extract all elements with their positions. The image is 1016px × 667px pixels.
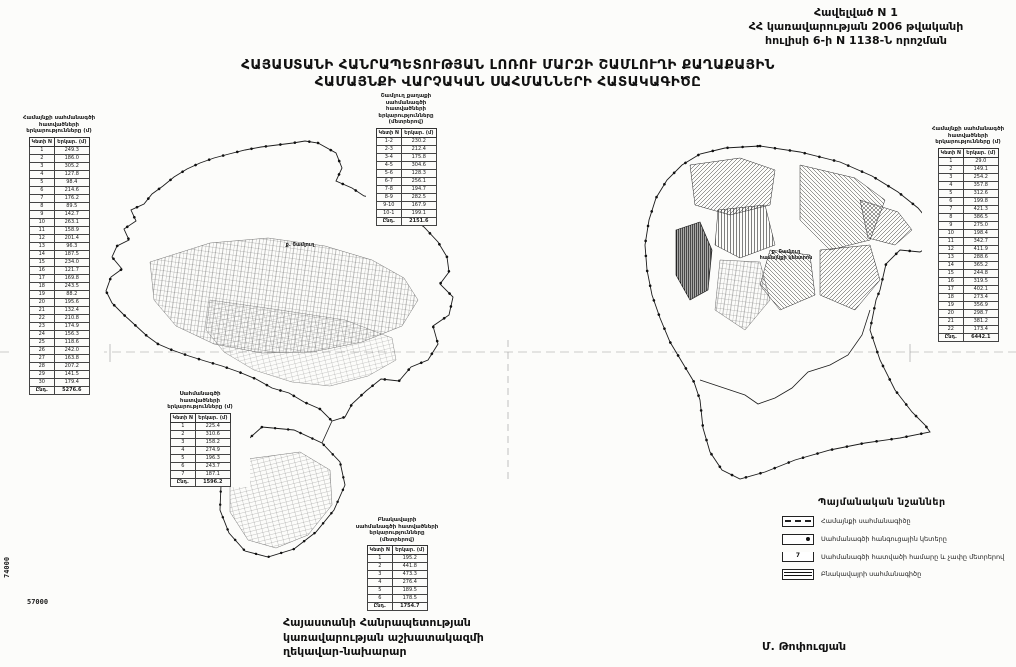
table-cell: 23 <box>29 322 55 330</box>
table-row: 889.5 <box>29 202 89 210</box>
table-row: 2186.0 <box>29 154 89 162</box>
table-cell: 230.2 <box>402 137 436 145</box>
table-title-line: Համայնքի սահմանագծի <box>922 126 1014 133</box>
table-row: 30179.4 <box>29 378 89 386</box>
table-cell: 1 <box>367 555 393 563</box>
table-row: 7-8194.7 <box>376 185 436 193</box>
table-cell: 18 <box>938 293 964 301</box>
table-cell: 276.4 <box>393 579 427 587</box>
column-header: Երկար. (մ) <box>964 148 998 157</box>
table-cell: 199.1 <box>402 209 436 217</box>
table-cell: 2 <box>29 154 55 162</box>
table-row: 1225.4 <box>170 422 230 430</box>
right-map-parcels <box>715 260 770 330</box>
column-header: Կետի N <box>170 413 196 422</box>
table-cell: 2 <box>170 430 196 438</box>
table-cell: 16 <box>938 277 964 285</box>
table-cell: 4 <box>938 181 964 189</box>
table-cell: 132.4 <box>55 306 89 314</box>
legend-item-label: Սահմանագծի հանգուցային կետերը <box>821 536 947 543</box>
table-row: 4-5304.6 <box>376 161 436 169</box>
table-cell: 29.0 <box>964 157 998 165</box>
table-cell: 24 <box>29 330 55 338</box>
table-cell: 7 <box>938 205 964 213</box>
table-row: 13288.6 <box>938 253 998 261</box>
table-cell: 214.6 <box>55 186 89 194</box>
table-cell: 173.4 <box>964 325 998 333</box>
table-cell: 2 <box>367 563 393 571</box>
table-cell: 169.8 <box>55 274 89 282</box>
table-cell: 3 <box>170 438 196 446</box>
table-cell: 225.4 <box>196 422 230 430</box>
column-header: Կետի N <box>367 546 393 555</box>
table-cell: 1 <box>170 422 196 430</box>
table-row: 5312.6 <box>938 189 998 197</box>
table-cell: 1596.2 <box>196 478 230 486</box>
table-header-row: Կետի NԵրկար. (մ) <box>29 137 89 146</box>
table-row: 15234.0 <box>29 258 89 266</box>
table-cell: 312.6 <box>964 189 998 197</box>
table-row: 4274.9 <box>170 446 230 454</box>
scanned-map-page: Հավելված N 1 ՀՀ կառավարության 2006 թվակա… <box>0 0 1016 667</box>
table-row: 10263.1 <box>29 218 89 226</box>
table-cell: 8 <box>29 202 55 210</box>
table-cell: 158.9 <box>55 226 89 234</box>
table-row: 6243.7 <box>170 462 230 470</box>
boundary-table-left: Համայնքի սահմանագծիհատվածներիերկարությու… <box>14 115 104 395</box>
table-cell: 8-9 <box>376 193 402 201</box>
signature-name: Մ. Թոփուզյան <box>762 640 846 653</box>
table-row: 2-3212.4 <box>376 145 436 153</box>
table-cell: 201.4 <box>55 234 89 242</box>
table-title: Համայնքի սահմանագծիհատվածներիերկարությու… <box>922 126 1014 146</box>
table-cell: 2 <box>938 165 964 173</box>
column-header: Կետի N <box>29 137 55 146</box>
table-row: 20195.6 <box>29 298 89 306</box>
table-cell: 3 <box>367 571 393 579</box>
table-row: 2441.8 <box>367 563 427 571</box>
table-row: 17402.1 <box>938 285 998 293</box>
column-header: Կետի N <box>938 148 964 157</box>
table-row: 26242.0 <box>29 346 89 354</box>
table-cell: 98.4 <box>55 178 89 186</box>
table-cell: 28 <box>29 362 55 370</box>
boundary-table-upper-mid: Շամլուղ քաղաքիսահմանագծի հատվածներիերկար… <box>366 93 446 226</box>
table-title: Շամլուղ քաղաքիսահմանագծի հատվածներիերկար… <box>366 93 446 126</box>
right-map-outer-boundary <box>645 146 936 479</box>
data-table: Կետի NԵրկար. (մ)129.02149.13254.24357.85… <box>938 148 999 342</box>
table-row: 1249.3 <box>29 146 89 154</box>
table-row: 4276.4 <box>367 579 427 587</box>
page-title-line-1: ՀԱՅԱՍՏԱՆԻ ՀԱՆՐԱՊԵՏՈՒԹՅԱՆ ԼՈՌՈՒ ՄԱՐԶԻ ՇԱՄ… <box>0 57 1016 73</box>
table-cell: 402.1 <box>964 285 998 293</box>
table-row: 7421.3 <box>938 205 998 213</box>
signature-block: Հայաստանի Հանրապետության կառավարության ա… <box>283 616 484 660</box>
table-row: 14365.2 <box>938 261 998 269</box>
right-map-label-line: համայնքի կենտրոն <box>748 256 824 262</box>
table-row: 19356.9 <box>938 301 998 309</box>
table-cell: 288.6 <box>964 253 998 261</box>
table-cell: 254.2 <box>964 173 998 181</box>
table-cell: 4 <box>29 170 55 178</box>
table-header-row: Կետի NԵրկար. (մ) <box>170 413 230 422</box>
table-cell: 8 <box>938 213 964 221</box>
table-cell: 6 <box>938 197 964 205</box>
left-map-connector-line <box>322 421 332 443</box>
table-header-row: Կետի NԵրկար. (մ) <box>938 148 998 157</box>
table-cell: 118.6 <box>55 338 89 346</box>
column-header: Երկար. (մ) <box>402 128 436 137</box>
annex-header: Հավելված N 1 ՀՀ կառավարության 2006 թվակա… <box>706 6 1006 48</box>
column-header: Կետի N <box>376 128 402 137</box>
table-cell: 12 <box>938 245 964 253</box>
table-cell: 187.1 <box>196 470 230 478</box>
table-row: 4357.8 <box>938 181 998 189</box>
column-header: Երկար. (մ) <box>55 137 89 146</box>
table-row: 6178.5 <box>367 595 427 603</box>
table-cell: 121.7 <box>55 266 89 274</box>
table-row: 9-10167.9 <box>376 201 436 209</box>
table-row: 1-2230.2 <box>376 137 436 145</box>
table-row: 23174.9 <box>29 322 89 330</box>
table-cell: 158.2 <box>196 438 230 446</box>
table-cell: 4 <box>170 446 196 454</box>
table-cell: 3 <box>938 173 964 181</box>
table-cell: 187.5 <box>55 250 89 258</box>
table-row: 14187.5 <box>29 250 89 258</box>
right-map-label: ք. Շամլուղ համայնքի կենտրոն <box>748 250 824 261</box>
table-header-row: Կետի NԵրկար. (մ) <box>367 546 427 555</box>
table-cell: 15 <box>29 258 55 266</box>
table-cell: 275.0 <box>964 221 998 229</box>
table-cell: 89.5 <box>55 202 89 210</box>
signature-line: ղեկավար-նախարար <box>283 645 484 660</box>
table-cell: 176.2 <box>55 194 89 202</box>
data-table: Կետի NԵրկար. (մ)1249.32186.03305.24127.8… <box>29 137 90 395</box>
legend-title: Պայմանական նշաններ <box>818 497 1016 508</box>
table-cell: 5276.6 <box>55 386 89 394</box>
table-cell: 21 <box>938 317 964 325</box>
table-cell: 282.5 <box>402 193 436 201</box>
legend-item: Համայնքի սահմանագիծը <box>782 516 1016 527</box>
table-title: Սահմանագծիհատվածներիերկարությունները (մ) <box>150 391 250 411</box>
table-cell: 234.0 <box>55 258 89 266</box>
table-cell: 127.8 <box>55 170 89 178</box>
table-title: Համայնքի սահմանագծիհատվածներիերկարությու… <box>14 115 104 135</box>
table-cell: 298.7 <box>964 309 998 317</box>
right-map-hatch-dense <box>676 222 712 300</box>
table-cell: 6 <box>29 186 55 194</box>
table-cell: 242.0 <box>55 346 89 354</box>
data-table: Կետի NԵրկար. (մ)1195.22441.83473.34276.4… <box>367 545 428 611</box>
table-cell: 3 <box>29 162 55 170</box>
table-header-row: Կետի NԵրկար. (մ) <box>376 128 436 137</box>
table-row: 8386.5 <box>938 213 998 221</box>
right-map-boundary-points <box>645 146 936 479</box>
table-row: 2149.1 <box>938 165 998 173</box>
table-cell: 273.4 <box>964 293 998 301</box>
table-cell: 199.8 <box>964 197 998 205</box>
table-cell: 22 <box>29 314 55 322</box>
table-row: 16121.7 <box>29 266 89 274</box>
table-cell: 17 <box>938 285 964 293</box>
table-cell: 128.3 <box>402 169 436 177</box>
table-cell: 11 <box>29 226 55 234</box>
legend-item: Բնակավայրի սահմանագիծը <box>782 569 1016 580</box>
left-map-label: ք. Շամլուղ <box>268 243 332 249</box>
table-row: 12411.9 <box>938 245 998 253</box>
table-cell: 11 <box>938 237 964 245</box>
table-cell: 1-2 <box>376 137 402 145</box>
column-header: Երկար. (մ) <box>196 413 230 422</box>
table-cell: 305.2 <box>55 162 89 170</box>
legend-item: 7Սահմանագծի հատվածի համարը և չափը մետրեր… <box>782 552 1016 562</box>
table-cell: 175.8 <box>402 153 436 161</box>
table-row: 8-9282.5 <box>376 193 436 201</box>
table-cell: 473.3 <box>393 571 427 579</box>
table-row: 598.4 <box>29 178 89 186</box>
table-row: 15244.8 <box>938 269 998 277</box>
table-cell: 7 <box>29 194 55 202</box>
table-cell: 178.5 <box>393 595 427 603</box>
table-cell: 14 <box>938 261 964 269</box>
table-cell: 18 <box>29 282 55 290</box>
table-cell: 5 <box>170 454 196 462</box>
table-cell: 29 <box>29 370 55 378</box>
table-cell: 2151.6 <box>402 217 436 225</box>
table-cell: 15 <box>938 269 964 277</box>
table-cell: 167.9 <box>402 201 436 209</box>
table-cell: 12 <box>29 234 55 242</box>
table-row: 5189.5 <box>367 587 427 595</box>
table-cell: 13 <box>938 253 964 261</box>
table-row: 3-4175.8 <box>376 153 436 161</box>
table-cell: 25 <box>29 338 55 346</box>
table-cell: 198.4 <box>964 229 998 237</box>
table-cell: 7 <box>170 470 196 478</box>
table-row: 9275.0 <box>938 221 998 229</box>
grid-coordinate-horizontal: 57000 <box>27 598 48 606</box>
table-cell: 9-10 <box>376 201 402 209</box>
table-cell: 194.7 <box>402 185 436 193</box>
table-cell: 163.8 <box>55 354 89 362</box>
legend-item-label: Բնակավայրի սահմանագիծը <box>821 571 921 578</box>
table-cell: 26 <box>29 346 55 354</box>
annex-header-line: հուլիսի 6-ի N 1138-Ն որոշման <box>706 34 1006 48</box>
table-cell: 207.2 <box>55 362 89 370</box>
table-cell: 5 <box>938 189 964 197</box>
table-cell: 212.4 <box>402 145 436 153</box>
boundary-table-bottom-mid: Բնակավայրիսահմանագծի հատվածներիերկարությ… <box>350 517 444 611</box>
table-cell: 174.9 <box>55 322 89 330</box>
table-row: 6-7256.1 <box>376 177 436 185</box>
table-cell: 156.3 <box>55 330 89 338</box>
table-cell: Ընդ. <box>170 478 196 486</box>
table-cell: 421.3 <box>964 205 998 213</box>
table-cell: 243.7 <box>196 462 230 470</box>
table-cell: 9 <box>938 221 964 229</box>
table-cell: 243.5 <box>55 282 89 290</box>
table-cell: 7-8 <box>376 185 402 193</box>
table-cell: 196.3 <box>196 454 230 462</box>
table-cell: 149.1 <box>964 165 998 173</box>
table-total-row: Ընդ.5276.6 <box>29 386 89 394</box>
table-cell: 5 <box>29 178 55 186</box>
settlement-boundary-icon <box>782 569 814 580</box>
table-cell: 249.3 <box>55 146 89 154</box>
table-row: 28207.2 <box>29 362 89 370</box>
legend-item-label: Սահմանագծի հատվածի համարը և չափը մետրերո… <box>821 554 1004 561</box>
table-cell: 5-6 <box>376 169 402 177</box>
data-table: Կետի NԵրկար. (մ)1225.42310.63158.24274.9… <box>170 413 231 487</box>
table-cell: 6 <box>367 595 393 603</box>
table-cell: Ընդ. <box>938 333 964 341</box>
legend-item-label: Համայնքի սահմանագիծը <box>821 518 911 525</box>
table-cell: 1 <box>29 146 55 154</box>
table-cell: 189.5 <box>393 587 427 595</box>
table-cell: 256.1 <box>402 177 436 185</box>
table-cell: Ընդ. <box>376 217 402 225</box>
table-cell: 17 <box>29 274 55 282</box>
table-cell: Ընդ. <box>29 386 55 394</box>
table-row: 22210.8 <box>29 314 89 322</box>
table-cell: 6442.1 <box>964 333 998 341</box>
table-cell: Ընդ. <box>367 603 393 611</box>
annex-header-line: Հավելված N 1 <box>706 6 1006 20</box>
table-cell: 195.2 <box>393 555 427 563</box>
table-cell: 1754.7 <box>393 603 427 611</box>
table-cell: 10 <box>938 229 964 237</box>
table-cell: 244.8 <box>964 269 998 277</box>
table-row: 129.0 <box>938 157 998 165</box>
community-boundary-icon <box>782 516 814 527</box>
table-cell: 10-1 <box>376 209 402 217</box>
table-row: 10198.4 <box>938 229 998 237</box>
table-title-line: սահմանագծի հատվածների <box>366 100 446 113</box>
table-row: 5196.3 <box>170 454 230 462</box>
table-row: 2310.6 <box>170 430 230 438</box>
data-table: Կետի NԵրկար. (մ)1-2230.22-3212.43-4175.8… <box>376 128 437 226</box>
signature-line: Հայաստանի Հանրապետության <box>283 616 484 631</box>
table-cell: 357.8 <box>964 181 998 189</box>
table-cell: 9 <box>29 210 55 218</box>
table-row: 3473.3 <box>367 571 427 579</box>
table-title-line: երկարությունները (մ) <box>14 128 104 135</box>
table-cell: 88.2 <box>55 290 89 298</box>
table-cell: 19 <box>29 290 55 298</box>
table-row: 24156.3 <box>29 330 89 338</box>
table-row: 7176.2 <box>29 194 89 202</box>
table-cell: 142.7 <box>55 210 89 218</box>
table-row: 11158.9 <box>29 226 89 234</box>
table-row: 16319.5 <box>938 277 998 285</box>
table-row: 3158.2 <box>170 438 230 446</box>
table-row: 3254.2 <box>938 173 998 181</box>
table-cell: 411.9 <box>964 245 998 253</box>
table-cell: 319.5 <box>964 277 998 285</box>
table-total-row: Ընդ.1754.7 <box>367 603 427 611</box>
table-title: Բնակավայրիսահմանագծի հատվածներիերկարությ… <box>350 517 444 543</box>
table-row: 3305.2 <box>29 162 89 170</box>
table-cell: 310.6 <box>196 430 230 438</box>
table-cell: 19 <box>938 301 964 309</box>
table-cell: 381.2 <box>964 317 998 325</box>
table-title-line: (մետրերով) <box>350 537 444 544</box>
page-title-line-2: ՀԱՄԱՅՆՔԻ ՎԱՐՉԱԿԱՆ ՍԱՀՄԱՆՆԵՐԻ ՀԱՏԱԿԱԳԻԾԸ <box>0 74 1016 90</box>
table-row: 1195.2 <box>367 555 427 563</box>
table-cell: 186.0 <box>55 154 89 162</box>
table-row: 5-6128.3 <box>376 169 436 177</box>
table-row: 4127.8 <box>29 170 89 178</box>
signature-line: կառավարության աշխատակազմի <box>283 631 484 646</box>
boundary-table-mid-left: Սահմանագծիհատվածներիերկարությունները (մ)… <box>150 391 250 487</box>
legend-items: Համայնքի սահմանագիծըՍահմանագծի հանգուցայ… <box>782 516 1016 580</box>
table-title-line: երկարությունները (մ) <box>150 404 250 411</box>
table-row: 27163.8 <box>29 354 89 362</box>
table-cell: 342.7 <box>964 237 998 245</box>
table-cell: 4-5 <box>376 161 402 169</box>
table-cell: 263.1 <box>55 218 89 226</box>
table-cell: 356.9 <box>964 301 998 309</box>
table-cell: 195.6 <box>55 298 89 306</box>
table-cell: 30 <box>29 378 55 386</box>
table-cell: 2-3 <box>376 145 402 153</box>
boundary-table-right: Համայնքի սահմանագծիհատվածներիերկարությու… <box>922 126 1014 342</box>
table-cell: 16 <box>29 266 55 274</box>
table-cell: 5 <box>367 587 393 595</box>
table-cell: 141.5 <box>55 370 89 378</box>
table-row: 10-1199.1 <box>376 209 436 217</box>
table-cell: 14 <box>29 250 55 258</box>
table-total-row: Ընդ.1596.2 <box>170 478 230 486</box>
table-row: 25118.6 <box>29 338 89 346</box>
table-title-line: Համայնքի սահմանագծի <box>14 115 104 122</box>
table-row: 6214.6 <box>29 186 89 194</box>
table-cell: 365.2 <box>964 261 998 269</box>
table-row: 18243.5 <box>29 282 89 290</box>
table-cell: 10 <box>29 218 55 226</box>
table-cell: 6-7 <box>376 177 402 185</box>
table-row: 29141.5 <box>29 370 89 378</box>
table-cell: 20 <box>29 298 55 306</box>
table-row: 17169.8 <box>29 274 89 282</box>
table-cell: 441.8 <box>393 563 427 571</box>
grid-coordinate-vertical: 74000 <box>3 557 11 578</box>
table-cell: 3-4 <box>376 153 402 161</box>
table-cell: 210.8 <box>55 314 89 322</box>
segment-number-icon: 7 <box>782 552 814 562</box>
table-cell: 22 <box>938 325 964 333</box>
table-title-line: երկարությունները (մ) <box>922 139 1014 146</box>
table-total-row: Ընդ.2151.6 <box>376 217 436 225</box>
table-cell: 27 <box>29 354 55 362</box>
table-row: 12201.4 <box>29 234 89 242</box>
table-cell: 304.6 <box>402 161 436 169</box>
table-cell: 179.4 <box>55 378 89 386</box>
table-row: 11342.7 <box>938 237 998 245</box>
table-row: 7187.1 <box>170 470 230 478</box>
column-header: Երկար. (մ) <box>393 546 427 555</box>
table-row: 22173.4 <box>938 325 998 333</box>
node-points-icon <box>782 534 814 545</box>
table-cell: 6 <box>170 462 196 470</box>
right-map-inner-boundary <box>700 310 870 404</box>
table-cell: 4 <box>367 579 393 587</box>
annex-header-line: ՀՀ կառավարության 2006 թվականի <box>706 20 1006 34</box>
table-row: 9142.7 <box>29 210 89 218</box>
table-row: 20298.7 <box>938 309 998 317</box>
legend: Պայմանական նշաններ Համայնքի սահմանագիծըՍ… <box>782 497 1016 587</box>
